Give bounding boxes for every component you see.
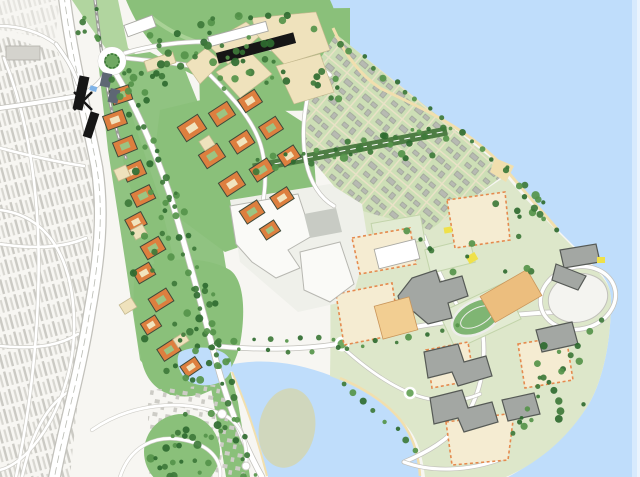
- tree: [185, 269, 192, 276]
- tree: [175, 430, 181, 436]
- tree: [122, 71, 126, 75]
- tree: [345, 48, 352, 55]
- tree: [79, 19, 86, 26]
- tree: [172, 212, 179, 219]
- tree: [426, 127, 430, 131]
- tree: [186, 328, 194, 336]
- tree: [411, 128, 415, 132]
- tree: [248, 15, 253, 20]
- tree: [174, 191, 178, 195]
- tree: [252, 338, 256, 342]
- tree: [586, 328, 593, 335]
- campus-dashed-parcel: [447, 192, 510, 248]
- tree: [335, 85, 340, 90]
- tree: [576, 358, 583, 365]
- tree: [270, 153, 277, 160]
- tree: [380, 75, 387, 82]
- tree: [314, 148, 320, 154]
- tree: [150, 268, 155, 273]
- tree: [405, 334, 412, 341]
- tree: [220, 382, 224, 386]
- tree: [328, 95, 333, 100]
- tree: [517, 419, 522, 424]
- tree: [470, 139, 474, 143]
- tree: [148, 189, 154, 195]
- tree: [143, 97, 150, 104]
- tree: [535, 196, 542, 203]
- tree: [575, 343, 581, 349]
- tree: [209, 58, 217, 66]
- tree: [163, 208, 168, 213]
- tree: [268, 336, 274, 342]
- tree: [202, 283, 208, 289]
- tree: [373, 338, 378, 343]
- tree: [283, 152, 287, 156]
- tree: [205, 460, 212, 467]
- tree: [313, 73, 320, 80]
- masterplan-svg: [0, 0, 640, 477]
- tree: [186, 233, 192, 239]
- tree: [193, 441, 201, 449]
- tree: [181, 208, 188, 215]
- tree: [309, 349, 314, 354]
- tree: [156, 43, 161, 48]
- tree: [181, 332, 186, 337]
- tree: [568, 352, 574, 358]
- tree: [234, 417, 240, 423]
- tree: [237, 347, 241, 351]
- tree: [222, 358, 229, 365]
- tree: [387, 142, 393, 148]
- tree: [398, 150, 406, 158]
- tree: [253, 168, 260, 175]
- tree: [311, 80, 317, 86]
- tree: [503, 269, 507, 273]
- tree: [178, 338, 183, 343]
- tree: [132, 168, 140, 176]
- tree: [440, 329, 444, 333]
- tree: [226, 56, 230, 60]
- tree: [318, 68, 325, 75]
- tree: [361, 345, 365, 349]
- tree: [281, 70, 286, 75]
- tree: [109, 76, 115, 82]
- tree: [181, 51, 189, 59]
- tree: [599, 317, 604, 322]
- tree: [283, 77, 291, 85]
- tree: [340, 154, 348, 162]
- tree: [363, 54, 368, 59]
- tree: [402, 437, 409, 444]
- tree: [160, 231, 165, 236]
- tree: [334, 147, 338, 151]
- tree: [345, 346, 350, 351]
- tree: [191, 287, 195, 291]
- tree: [557, 407, 565, 415]
- tree: [449, 127, 453, 131]
- tree: [147, 32, 154, 39]
- tree: [176, 443, 182, 449]
- tree: [403, 90, 408, 95]
- tree: [521, 423, 528, 430]
- tree: [235, 12, 243, 20]
- tree: [230, 338, 237, 345]
- masterplan-map: [0, 0, 640, 477]
- tree: [550, 387, 557, 394]
- tree: [222, 425, 227, 430]
- tree: [246, 70, 252, 76]
- tree: [522, 194, 527, 199]
- tree: [177, 63, 184, 70]
- tree: [95, 7, 99, 11]
- tree: [157, 38, 162, 43]
- tree: [350, 389, 357, 396]
- existing-building: [6, 46, 40, 60]
- tree: [163, 174, 170, 181]
- tree: [162, 444, 170, 452]
- tree: [516, 183, 523, 190]
- tree: [345, 139, 351, 145]
- tree: [183, 309, 191, 317]
- tree: [231, 75, 238, 82]
- tree: [204, 328, 210, 334]
- tree: [279, 17, 286, 24]
- tree: [272, 60, 276, 64]
- tree: [172, 204, 177, 209]
- tree: [333, 76, 339, 82]
- tree: [465, 255, 469, 259]
- tree: [202, 288, 208, 294]
- tree: [459, 129, 466, 136]
- tree: [206, 360, 212, 366]
- tree: [418, 237, 422, 241]
- tree: [198, 471, 202, 475]
- tree: [218, 429, 223, 434]
- tree: [311, 26, 318, 33]
- tree: [241, 457, 245, 461]
- tree: [272, 164, 279, 171]
- tree: [157, 465, 162, 470]
- tree: [308, 160, 314, 166]
- tree: [172, 281, 178, 287]
- tree: [270, 76, 274, 80]
- tree: [211, 292, 215, 296]
- tree: [413, 448, 419, 454]
- tree: [531, 205, 538, 212]
- tree: [554, 228, 559, 233]
- tree: [150, 137, 156, 143]
- tree: [503, 167, 509, 173]
- tree: [198, 306, 203, 311]
- tree: [440, 125, 447, 132]
- roundabout-main: [99, 48, 126, 75]
- tree: [262, 56, 269, 63]
- yellow-accent-building: [597, 257, 605, 263]
- tree: [194, 327, 199, 332]
- tree: [371, 66, 376, 71]
- tree: [195, 314, 203, 322]
- tree: [286, 350, 291, 355]
- tree: [581, 402, 585, 406]
- tree: [360, 398, 367, 405]
- tree: [159, 215, 164, 220]
- tree: [125, 88, 132, 95]
- tree: [208, 345, 213, 350]
- tree: [197, 21, 204, 28]
- tree: [173, 363, 178, 368]
- tree: [117, 93, 124, 100]
- tree: [214, 421, 222, 429]
- tree: [555, 415, 563, 423]
- tree: [172, 322, 177, 327]
- tree: [190, 377, 196, 383]
- tree: [535, 384, 540, 389]
- tree: [174, 30, 181, 37]
- tree: [155, 157, 161, 163]
- tree: [335, 95, 342, 102]
- tree: [217, 75, 223, 81]
- tree: [126, 68, 131, 73]
- tree: [260, 40, 268, 48]
- tree: [183, 412, 188, 417]
- tree: [153, 70, 160, 77]
- tree: [210, 16, 215, 21]
- tree: [142, 89, 149, 96]
- tree: [516, 234, 521, 239]
- tree: [558, 368, 564, 374]
- tree: [361, 137, 367, 143]
- tree: [214, 362, 221, 369]
- tree: [425, 332, 430, 337]
- tree: [214, 352, 219, 357]
- tree: [395, 341, 399, 345]
- tree: [171, 434, 175, 438]
- tree: [206, 301, 213, 308]
- tree: [162, 81, 168, 87]
- tree: [349, 153, 353, 157]
- tree: [155, 149, 160, 154]
- tree: [139, 71, 144, 76]
- tree: [396, 427, 400, 431]
- tree: [403, 227, 410, 234]
- tree: [264, 81, 268, 85]
- tree: [492, 200, 499, 207]
- tree: [247, 35, 252, 40]
- tree: [525, 406, 530, 411]
- tree: [336, 345, 341, 350]
- tree: [370, 408, 375, 413]
- tree: [220, 43, 225, 48]
- tree: [167, 253, 174, 260]
- tree: [183, 426, 190, 433]
- tree: [96, 37, 101, 42]
- tree: [141, 233, 148, 240]
- tree: [242, 434, 248, 440]
- tree: [244, 44, 249, 49]
- tree: [316, 335, 322, 341]
- tree: [302, 152, 306, 156]
- tree: [557, 350, 561, 354]
- tree: [337, 41, 344, 48]
- tree: [209, 320, 216, 327]
- tree: [192, 247, 196, 251]
- tree: [541, 200, 545, 204]
- tree: [182, 433, 188, 439]
- tree: [285, 339, 289, 343]
- tree: [204, 42, 212, 50]
- tree: [209, 435, 215, 441]
- tree: [422, 133, 429, 140]
- tree: [429, 152, 435, 158]
- tree: [181, 252, 185, 256]
- tree: [166, 195, 172, 201]
- tree: [333, 156, 337, 160]
- tree: [166, 236, 171, 241]
- tree: [266, 348, 270, 352]
- tree: [136, 125, 141, 130]
- tree: [194, 292, 201, 299]
- tree: [412, 97, 417, 102]
- tree: [163, 368, 169, 374]
- tree: [128, 81, 134, 87]
- tree: [189, 434, 196, 441]
- tree: [529, 418, 533, 422]
- tree: [382, 420, 386, 424]
- tree: [179, 460, 183, 464]
- tree: [229, 379, 235, 385]
- tree: [233, 48, 240, 55]
- tree: [208, 410, 215, 417]
- tree: [204, 434, 208, 438]
- tree: [141, 124, 147, 130]
- tree: [395, 79, 400, 84]
- tree: [455, 323, 459, 327]
- tree: [524, 265, 531, 272]
- tree: [406, 140, 413, 147]
- tree: [151, 249, 157, 255]
- tree: [192, 347, 199, 354]
- tree: [162, 464, 168, 470]
- tree: [540, 342, 548, 350]
- tree: [356, 144, 364, 152]
- tree: [126, 112, 132, 118]
- tree: [393, 135, 398, 140]
- tree: [254, 473, 258, 477]
- tree: [142, 144, 147, 149]
- tree: [216, 338, 222, 344]
- tree: [165, 49, 172, 56]
- tree: [176, 234, 183, 241]
- tree: [170, 460, 176, 466]
- tree: [195, 265, 199, 269]
- tree: [131, 231, 135, 235]
- tree: [192, 54, 198, 60]
- tree: [291, 159, 296, 164]
- tree: [541, 217, 546, 222]
- tree: [162, 200, 168, 206]
- tree: [520, 416, 524, 420]
- tree: [231, 58, 239, 66]
- tree: [136, 103, 141, 108]
- tree: [182, 375, 189, 382]
- tree: [517, 215, 521, 219]
- tree: [225, 400, 232, 407]
- tree: [146, 160, 153, 167]
- tree: [514, 208, 521, 215]
- tree: [207, 31, 212, 36]
- tree: [125, 199, 133, 207]
- tree: [417, 129, 422, 134]
- tree: [380, 132, 387, 139]
- tree: [141, 335, 148, 342]
- tree: [240, 50, 245, 55]
- tree: [332, 338, 336, 342]
- tree: [555, 397, 562, 404]
- tree: [450, 269, 457, 276]
- tree: [547, 380, 552, 385]
- tree: [428, 106, 432, 110]
- tree: [233, 437, 239, 443]
- tree: [443, 135, 449, 141]
- tree: [130, 74, 138, 82]
- tree: [222, 86, 227, 91]
- tree: [231, 394, 238, 401]
- tree: [256, 158, 260, 162]
- tree: [536, 395, 540, 399]
- tree: [210, 329, 217, 336]
- tree: [342, 382, 347, 387]
- tree: [480, 146, 486, 152]
- tree: [510, 431, 515, 436]
- tree: [83, 29, 87, 33]
- tree: [368, 149, 374, 155]
- tree: [76, 30, 81, 35]
- tree: [469, 240, 476, 247]
- tree: [427, 246, 432, 251]
- tree: [153, 456, 157, 460]
- tree: [534, 360, 541, 367]
- tree: [298, 335, 303, 340]
- tree: [196, 376, 204, 384]
- tree: [193, 458, 198, 463]
- tree: [244, 452, 250, 458]
- tree: [265, 13, 271, 19]
- tree: [489, 157, 494, 162]
- tree: [212, 300, 218, 306]
- tree: [439, 115, 444, 120]
- tree: [164, 61, 171, 68]
- tree: [538, 376, 542, 380]
- tree: [241, 59, 246, 64]
- tree: [130, 269, 137, 276]
